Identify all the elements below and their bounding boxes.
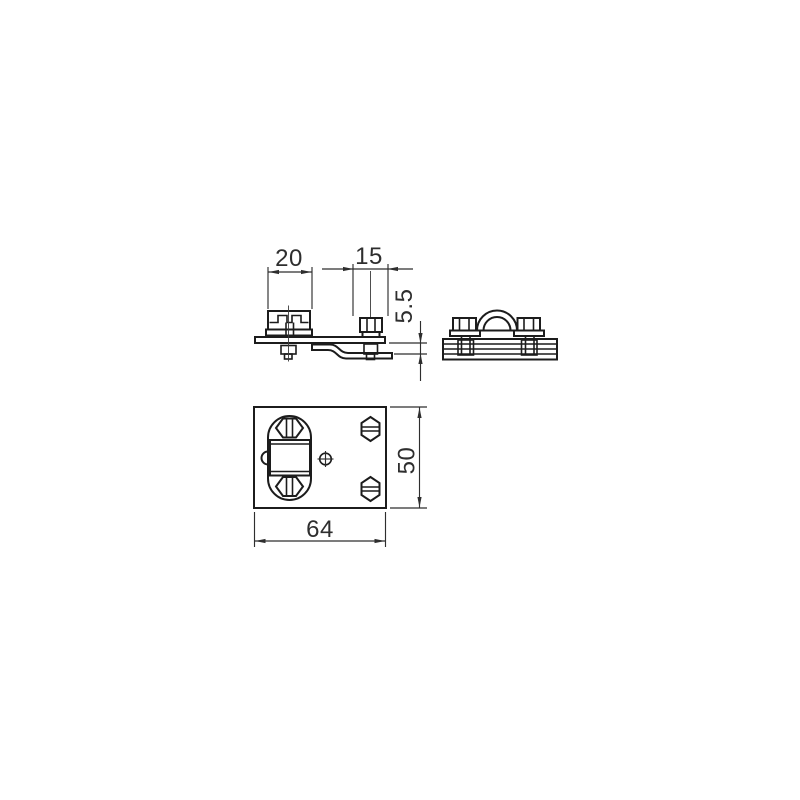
- dimension-plate-depth: 50: [390, 407, 427, 508]
- side-view: [255, 306, 392, 362]
- arrowhead-bottom: [418, 354, 422, 365]
- arrowhead-right: [375, 539, 386, 543]
- clamp-block: [268, 311, 310, 330]
- dim-label-50: 50: [394, 447, 421, 475]
- dim-label-15: 15: [355, 243, 383, 270]
- drawing-canvas: 20 15 5.5 50 64: [0, 0, 800, 800]
- front-left-nut: [458, 340, 474, 355]
- dimension-step-height: 5.5: [389, 289, 427, 381]
- front-left-bolt-head: [453, 318, 476, 331]
- technical-drawing: 20 15 5.5 50 64: [0, 0, 800, 800]
- hex-bolt-bottom-left: [276, 477, 303, 496]
- right-bolt-washer: [363, 332, 380, 337]
- dim-label-5.5: 5.5: [391, 289, 418, 324]
- hex-bolt-bottom-right: [362, 477, 380, 501]
- clamp-obround-opening: [268, 416, 311, 500]
- arrowhead-right: [388, 267, 399, 271]
- hex-bolt-top-left: [276, 419, 303, 438]
- front-right-bolt-head: [518, 318, 541, 331]
- arrowhead-left: [343, 267, 354, 271]
- dimension-clamp-width: 20: [268, 245, 312, 309]
- right-bolt-head: [360, 318, 382, 332]
- arrowhead-left: [255, 539, 266, 543]
- front-view: [443, 311, 557, 360]
- arrowhead-top: [417, 408, 421, 419]
- saddle-arch-inner: [484, 317, 511, 331]
- top-view: [254, 407, 386, 508]
- saddle-top-outline: [270, 440, 310, 476]
- clamp-flange: [266, 330, 312, 336]
- dim-label-20: 20: [275, 245, 303, 272]
- clamp-serration-profile: [270, 316, 309, 323]
- arrowhead-bottom: [417, 497, 421, 508]
- dimension-plate-width: 64: [255, 512, 386, 547]
- z-offset-strap: [312, 345, 392, 359]
- arrowhead-top: [418, 333, 422, 344]
- dim-label-64: 64: [306, 516, 334, 543]
- hex-bolt-top-right: [362, 417, 380, 441]
